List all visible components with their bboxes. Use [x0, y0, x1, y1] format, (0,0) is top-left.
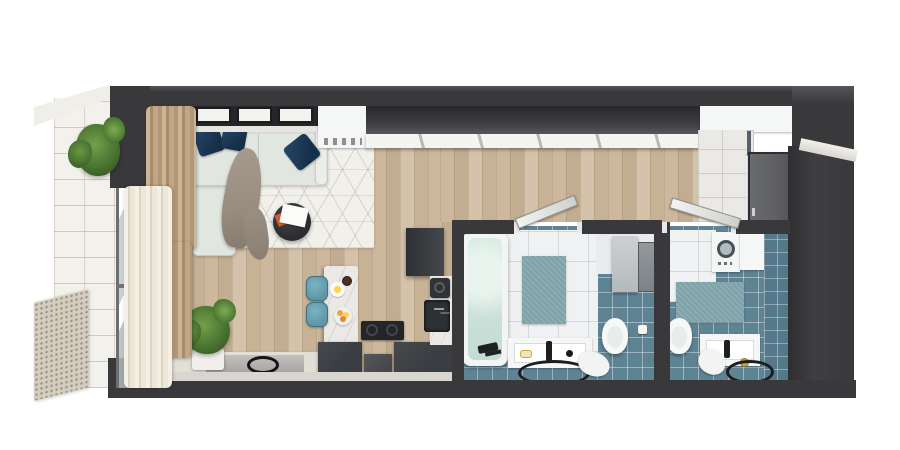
window-pane-2 [196, 107, 231, 123]
bathroom2-storage-cabinet [740, 232, 764, 270]
coffee-machine-ring [434, 282, 445, 293]
plate-food [334, 286, 341, 293]
wall-bathroom-divider [654, 222, 670, 383]
wardrobe-sliding-doors [366, 134, 700, 148]
kitchen-island [324, 266, 358, 344]
bathroom1-faucet [546, 341, 552, 361]
fruit-orange-3 [340, 316, 346, 322]
entry-shelf [700, 104, 792, 132]
bathroom1-paper-holder [638, 325, 647, 334]
wall-bathrooms-top-c [736, 220, 790, 234]
apartment-floor-plan [0, 0, 900, 450]
sink-faucet [434, 308, 444, 310]
bathroom2-faucet [724, 340, 730, 358]
tall-cabinet-fridge [406, 228, 444, 276]
window-pane-3 [237, 107, 272, 123]
bathroom1-drain-item [566, 350, 573, 357]
cooktop-burner-1 [366, 324, 378, 336]
balcony-plant [76, 124, 120, 176]
bathroom1-toilet [602, 318, 628, 354]
bathtub-water [468, 238, 502, 360]
wall-top-right-corner [792, 86, 854, 146]
door-jamb-2 [577, 222, 582, 233]
wall-bottom-inner-face [146, 372, 460, 381]
bathroom1-soap [520, 350, 532, 358]
bathroom1-wall-cabinet-a [612, 236, 638, 292]
window-pane-4 [278, 107, 313, 123]
wardrobe [366, 102, 700, 134]
bathroom2-teal-rug [676, 282, 744, 322]
bar-stool-1 [306, 276, 328, 301]
wall-bathroom1-left [452, 222, 464, 383]
wall-bathrooms-top-a [452, 220, 514, 234]
bathroom2-right-tile-wall [764, 228, 790, 383]
balcony-railing [34, 289, 88, 400]
wall-top [110, 86, 792, 106]
entry-door-handle [752, 208, 755, 216]
bar-stool-2 [306, 302, 328, 327]
coffee-station-items [324, 138, 362, 145]
wall-right [788, 146, 854, 398]
washing-machine-buttons [718, 262, 732, 265]
washing-machine-door [717, 240, 735, 258]
coffee-cup [342, 276, 352, 286]
kitchen-sink [424, 300, 450, 332]
door-jamb-3 [662, 222, 667, 233]
wall-bathrooms-top-b [582, 220, 662, 234]
hallway-wood-floor [440, 140, 700, 222]
sheer-curtain [124, 186, 172, 388]
cooktop-burner-2 [386, 324, 398, 336]
bathroom1-teal-rug [522, 256, 566, 324]
wall-bottom [144, 380, 856, 398]
